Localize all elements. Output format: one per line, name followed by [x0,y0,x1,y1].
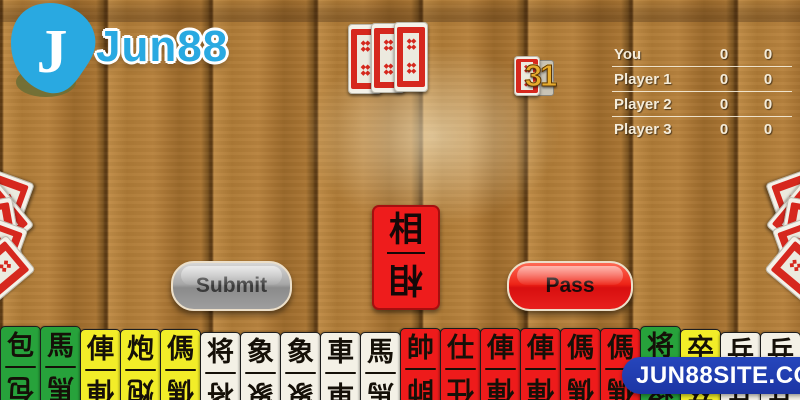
score-value: 0 [702,96,746,113]
hand-card-char: 俥 [487,329,514,367]
game-table: J Jun88 You00Player 100Player 200Player … [0,0,800,400]
hand-card[interactable]: 帥帥 [400,328,441,400]
score-value: 0 [702,46,746,63]
hand-card-char: 俥 [527,329,554,367]
score-row: Player 100 [612,67,792,92]
hand-card-char: 傌 [167,330,194,368]
hand-card[interactable]: 炮炮 [120,329,161,400]
hand-card-divider [5,366,35,368]
hand-card-char-rotated: 象 [247,375,274,400]
hand-card-divider [165,369,195,371]
score-row: Player 200 [612,92,792,117]
score-value: 0 [746,96,790,113]
hand-card-char: 仕 [447,329,474,367]
hand-card-divider [525,368,555,370]
hand-card-char: 炮 [127,330,154,368]
hand-card-divider [405,368,435,370]
hand-card-divider [125,369,155,371]
hand-card-char-rotated: 仕 [447,371,474,400]
scoreboard: You00Player 100Player 200Player 300 [612,42,792,141]
site-watermark-text: JUN88SITE.COM [622,362,800,390]
score-value: 0 [702,121,746,138]
hand-card-char: 象 [287,333,314,371]
svg-text:J: J [37,18,68,86]
hand-card[interactable]: 馬馬 [40,326,81,400]
score-value: 0 [746,46,790,63]
hand-card-char-rotated: 俥 [87,372,114,400]
hand-card[interactable]: 象象 [240,332,281,400]
hand-card[interactable]: 仕仕 [440,328,481,400]
hand-card-char-rotated: 馬 [367,375,394,400]
hand-card[interactable]: 将将 [200,332,241,400]
hand-card[interactable]: 象象 [280,332,321,400]
hand-card-char-rotated: 傌 [167,372,194,400]
hand-card-char-rotated: 包 [7,369,34,400]
hand-card-char-rotated: 傌 [567,371,594,400]
hand-card-divider [205,372,235,374]
score-row: You00 [612,42,792,67]
hand-card-char-rotated: 俥 [487,371,514,400]
hand-card-char: 帥 [407,329,434,367]
score-value: 0 [702,71,746,88]
site-watermark: JUN88SITE.COM [622,357,800,394]
hand-card[interactable]: 俥俥 [520,328,561,400]
hand-card-divider [85,369,115,371]
player-name: You [614,46,702,63]
hand-card-divider [325,372,355,374]
score-value: 0 [746,121,790,138]
hand-card-char: 馬 [47,327,74,365]
hand-card[interactable]: 包包 [0,326,41,400]
player-name: Player 1 [614,71,702,88]
player-name: Player 2 [614,96,702,113]
hand-card-char-rotated: 象 [287,375,314,400]
hand-card[interactable]: 馬馬 [360,332,401,400]
jun88-logo: J Jun88 [6,0,228,100]
scoreboard-rows: You00Player 100Player 200Player 300 [612,42,792,141]
hand-card-char-rotated: 将 [207,375,234,400]
brand-name: Jun88 [96,22,228,72]
hand-card-char-rotated: 俥 [527,371,554,400]
hand-card[interactable]: 傌傌 [160,329,201,400]
hand-card-char: 象 [247,333,274,371]
hand-card[interactable]: 傌傌 [560,328,601,400]
hand-card-char-rotated: 炮 [127,372,154,400]
hand-card-divider [365,372,395,374]
hand-card-divider [565,368,595,370]
score-value: 0 [746,71,790,88]
hand-card-divider [245,372,275,374]
jun88-pick-icon: J [6,0,100,100]
hand-card-char-rotated: 車 [327,375,354,400]
hand-card[interactable]: 車車 [320,332,361,400]
hand-card-divider [445,368,475,370]
hand-card-divider [45,366,75,368]
hand-card-divider [285,372,315,374]
hand-card-char: 包 [7,327,34,365]
hand-card-char: 車 [327,333,354,371]
hand-card-char: 俥 [87,330,114,368]
hand-card-char: 傌 [567,329,594,367]
hand-card-divider [485,368,515,370]
score-row: Player 300 [612,117,792,141]
hand-card-char: 将 [207,333,234,371]
hand-card-char: 馬 [367,333,394,371]
hand-card-char-rotated: 帥 [407,371,434,400]
hand-card[interactable]: 俥俥 [480,328,521,400]
hand-card[interactable]: 俥俥 [80,329,121,400]
player-name: Player 3 [614,121,702,138]
hand-card-char-rotated: 馬 [47,369,74,400]
